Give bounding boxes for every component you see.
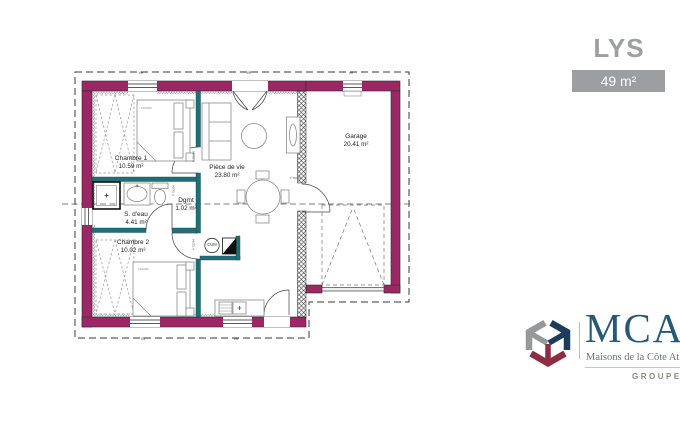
door-spec-label: P 75/204: [172, 185, 176, 196]
room-name: Chambre 1: [115, 155, 147, 163]
window-shutter-label: VR: [141, 337, 146, 341]
room-label-degagement: Dgmt 1.02 m²: [175, 197, 196, 214]
water-heater-label: CUM: [207, 242, 217, 247]
window-shutter-label: VR: [349, 71, 354, 75]
room-area: 23.80 m²: [209, 172, 244, 180]
bed-size-label: 140x200: [138, 267, 149, 271]
room-label-piece-de-vie: Pièce de vie 23.80 m²: [209, 164, 244, 181]
room-label-chambre-1: Chambre 1 10.59 m²: [115, 155, 147, 172]
window-shutter-label: VR: [234, 337, 239, 341]
rug-icon: [242, 124, 267, 149]
door-spec-label: P 75/204: [192, 239, 196, 250]
room-area: 20.41 m²: [344, 141, 369, 149]
logo-group-name: GROUPE HEXAOM: [632, 372, 680, 381]
room-label-s-deau: S. d'eau 4.41 m²: [124, 211, 148, 228]
toilet-icon: [152, 183, 168, 205]
washbasin-icon: [124, 183, 150, 205]
total-area-badge: 49 m²: [572, 70, 665, 92]
garage-swing-area: [322, 205, 384, 285]
room-name: Dgmt: [175, 197, 196, 205]
model-name-title: LYS: [573, 33, 665, 64]
bed-size-label: 140x200: [141, 106, 152, 110]
room-name: Pièce de vie: [209, 164, 244, 172]
sideboard-icon: [287, 117, 301, 153]
room-name: S. d'eau: [124, 211, 148, 219]
logo-tagline: Maisons de la Côte Atlantique: [586, 352, 680, 363]
shower-icon: [93, 182, 120, 209]
logo-rule: [585, 367, 680, 368]
logo-divider: [579, 322, 580, 359]
door-spec-label: P 75/204: [192, 151, 196, 162]
room-area: 10.02 m²: [117, 247, 149, 255]
room-name: Chambre 2: [117, 239, 149, 247]
room-area: 1.02 m²: [175, 205, 196, 213]
room-area: 4.41 m²: [124, 219, 148, 227]
room-area: 10.59 m²: [115, 163, 147, 171]
mca-cube-icon: [524, 317, 572, 367]
kitchen-counter-icon: [215, 300, 264, 316]
appliance-icon: [223, 238, 237, 254]
room-label-chambre-2: Chambre 2 10.02 m²: [117, 239, 149, 256]
sofa-icon: [202, 103, 231, 160]
logo-acronym: MCA: [585, 304, 680, 352]
room-label-garage: Garage 20.41 m²: [344, 133, 369, 150]
door-spec-label: P 75/204: [290, 176, 301, 180]
window-shutter-label: VR: [139, 71, 144, 75]
mca-logo: MCA Maisons de la Côte Atlantique GROUPE…: [524, 314, 680, 389]
garage-door-icon: [322, 205, 384, 291]
room-name: Garage: [344, 133, 369, 141]
window-shutter-label: VR: [247, 71, 252, 75]
plan-sheet: 140x200 140x200 P 75/204 P 75/204 P 75/2…: [0, 0, 680, 425]
dining-set-icon: [237, 171, 289, 223]
